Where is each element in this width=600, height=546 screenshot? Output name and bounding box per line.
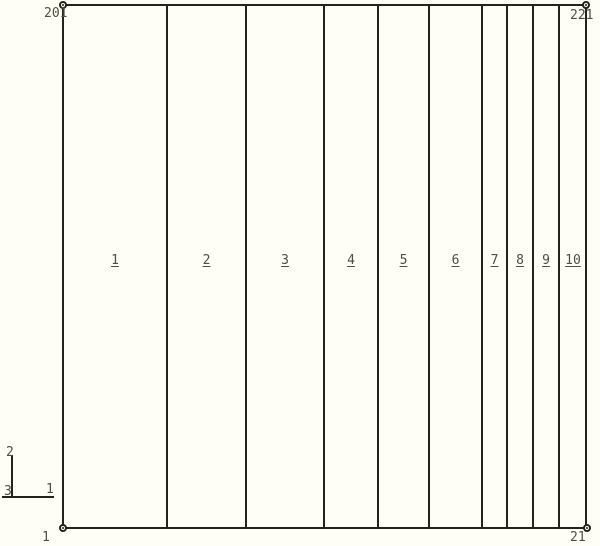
area-number-label: 5 (400, 254, 408, 267)
triad-axis-x-label: 1 (46, 483, 54, 496)
area-region-3[interactable]: 3 (247, 5, 323, 528)
area-number-label: 2 (203, 254, 211, 267)
node-number-label: 221 (570, 9, 593, 22)
area-region-9[interactable]: 9 (534, 5, 558, 528)
node-number-label: 1 (42, 531, 50, 544)
node-number-label: 201 (44, 7, 67, 20)
area-region-6[interactable]: 6 (430, 5, 481, 528)
area-number-label: 6 (452, 254, 460, 267)
area-region-10[interactable]: 10 (560, 5, 586, 528)
area-number-label: 7 (491, 254, 499, 267)
area-number-label: 10 (565, 254, 581, 267)
triad-axis-y-label: 2 (6, 446, 14, 459)
node-number-label: 21 (570, 531, 586, 544)
area-number-label: 8 (516, 254, 524, 267)
area-number-label: 9 (542, 254, 550, 267)
area-region-2[interactable]: 2 (168, 5, 245, 528)
area-number-label: 4 (347, 254, 355, 267)
area-region-8[interactable]: 8 (508, 5, 532, 528)
area-region-7[interactable]: 7 (483, 5, 506, 528)
node-marker-bottom-left[interactable] (59, 524, 67, 532)
area-region-1[interactable]: 1 (64, 5, 166, 528)
area-number-label: 1 (111, 254, 119, 267)
triad-axis-z-label: 3 (4, 485, 12, 498)
mesh-area-plot: 1 2 3 4 5 6 7 8 9 10 201 221 1 21 2 3 1 (0, 0, 600, 546)
area-number-label: 3 (281, 254, 289, 267)
area-region-5[interactable]: 5 (379, 5, 428, 528)
area-region-4[interactable]: 4 (325, 5, 377, 528)
